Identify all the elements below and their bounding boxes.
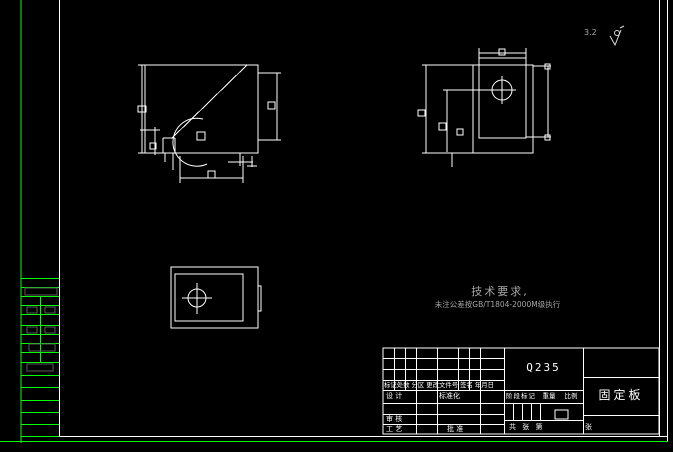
sheet-frame bbox=[0, 0, 668, 443]
title-block-stage-mark-label: 阶段标记 bbox=[505, 393, 537, 400]
sheet-inner-frame bbox=[59, 0, 668, 441]
title-block-process-label: 工 艺 bbox=[386, 426, 402, 433]
tech-requirements-title: 技术要求, bbox=[455, 286, 545, 297]
view-top-left[interactable] bbox=[138, 65, 281, 183]
title-block-weight-label: 重量 bbox=[540, 393, 558, 400]
title-block-revision-header: 标记处数 分区 更改文件号 签名 年月日 bbox=[384, 382, 501, 389]
view-top-right[interactable] bbox=[418, 48, 551, 167]
title-block-sheet-count-label: 共 张 第 bbox=[509, 424, 544, 431]
title-block-approve-label: 批 准 bbox=[447, 426, 463, 433]
surface-roughness-icon bbox=[610, 26, 624, 45]
title-block-design-label: 设 计 bbox=[386, 393, 402, 400]
title-block-standardization-label: 标准化 bbox=[439, 393, 460, 400]
view-front[interactable] bbox=[171, 267, 261, 328]
left-strip-table bbox=[21, 279, 59, 437]
cad-drawing-canvas[interactable]: 3.2 技术要求, 未注公差按GB/T1804-2000M级执行 Q235 固定… bbox=[0, 0, 673, 452]
title-block-check-label: 审 核 bbox=[386, 416, 402, 423]
title-block-part-name: 固定板 bbox=[583, 389, 659, 401]
title-block-material: Q235 bbox=[504, 362, 583, 373]
title-block-sheet-unit-label: 张 bbox=[585, 424, 592, 431]
roughness-value: 3.2 bbox=[584, 29, 597, 37]
title-block-scale-label: 比例 bbox=[561, 393, 581, 400]
tech-requirements-line1: 未注公差按GB/T1804-2000M级执行 bbox=[425, 301, 570, 309]
